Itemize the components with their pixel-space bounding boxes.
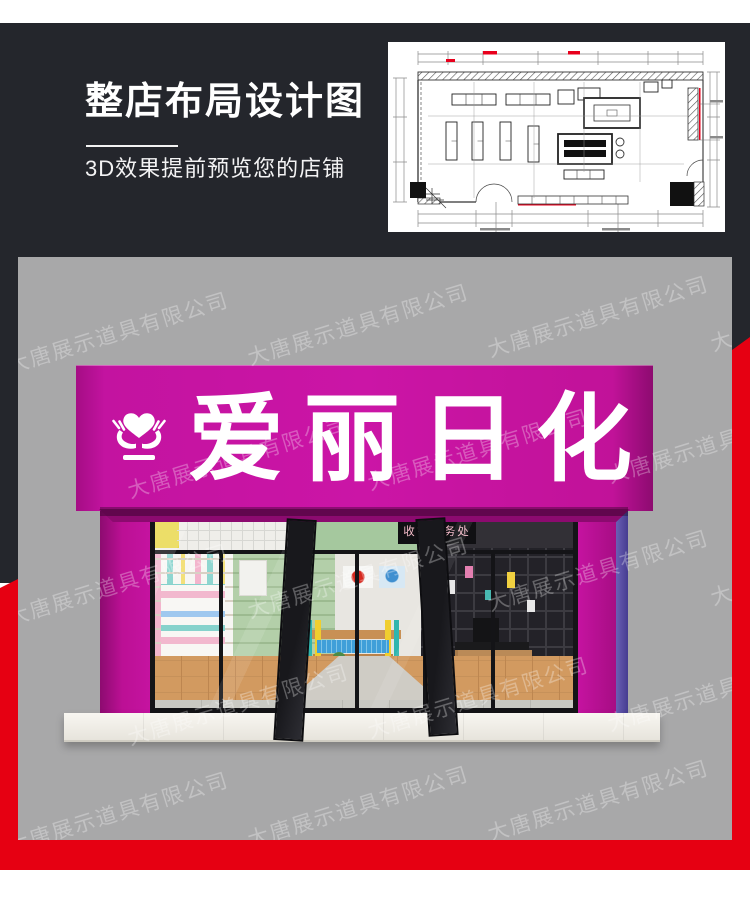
entrance-platform — [64, 713, 660, 742]
page: { "hero": { "title": "整店布局设计图", "subtitl… — [0, 0, 750, 909]
page-title: 整店布局设计图 — [85, 79, 365, 125]
hero-section: 整店布局设计图 3D效果提前预览您的店铺 — [0, 23, 750, 257]
page-subtitle: 3D效果提前预览您的店铺 — [85, 154, 345, 184]
right-side-wall — [616, 510, 628, 713]
watermark-text: 大唐展示道具有限公司 — [18, 764, 232, 840]
watermark-text: 大唐展示道具有限公司 — [244, 758, 473, 840]
watermark-text: 大唐展示道具有限公司 — [484, 268, 713, 364]
store-name: 爱丽日化 — [188, 366, 648, 511]
render-panel: 爱丽日化 — [18, 257, 732, 840]
left-pillar — [100, 510, 150, 713]
watermark-text: 大唐展示道具有限公司 — [707, 516, 732, 612]
bottom-red-band — [0, 840, 750, 870]
title-underline — [86, 145, 178, 147]
left-border-red — [0, 579, 18, 870]
storefront-signboard: 爱丽日化 — [76, 365, 653, 511]
glass-glare — [155, 520, 573, 708]
sign-shadow — [100, 507, 628, 516]
watermark-text: 大唐展示道具有限公司 — [707, 262, 732, 358]
left-border-charcoal — [0, 257, 18, 583]
floor-plan-drawing — [388, 42, 725, 232]
floor-plan-card — [388, 42, 725, 232]
heart-in-hands-icon — [110, 396, 168, 466]
watermark-text: 大唐展示道具有限公司 — [244, 276, 473, 372]
watermark-text: 大唐展示道具有限公司 — [484, 752, 713, 840]
storefront-glass: 收银服务处 — [150, 515, 578, 713]
right-border-red — [732, 335, 750, 870]
right-border-charcoal — [732, 257, 750, 350]
right-pillar — [578, 510, 616, 713]
